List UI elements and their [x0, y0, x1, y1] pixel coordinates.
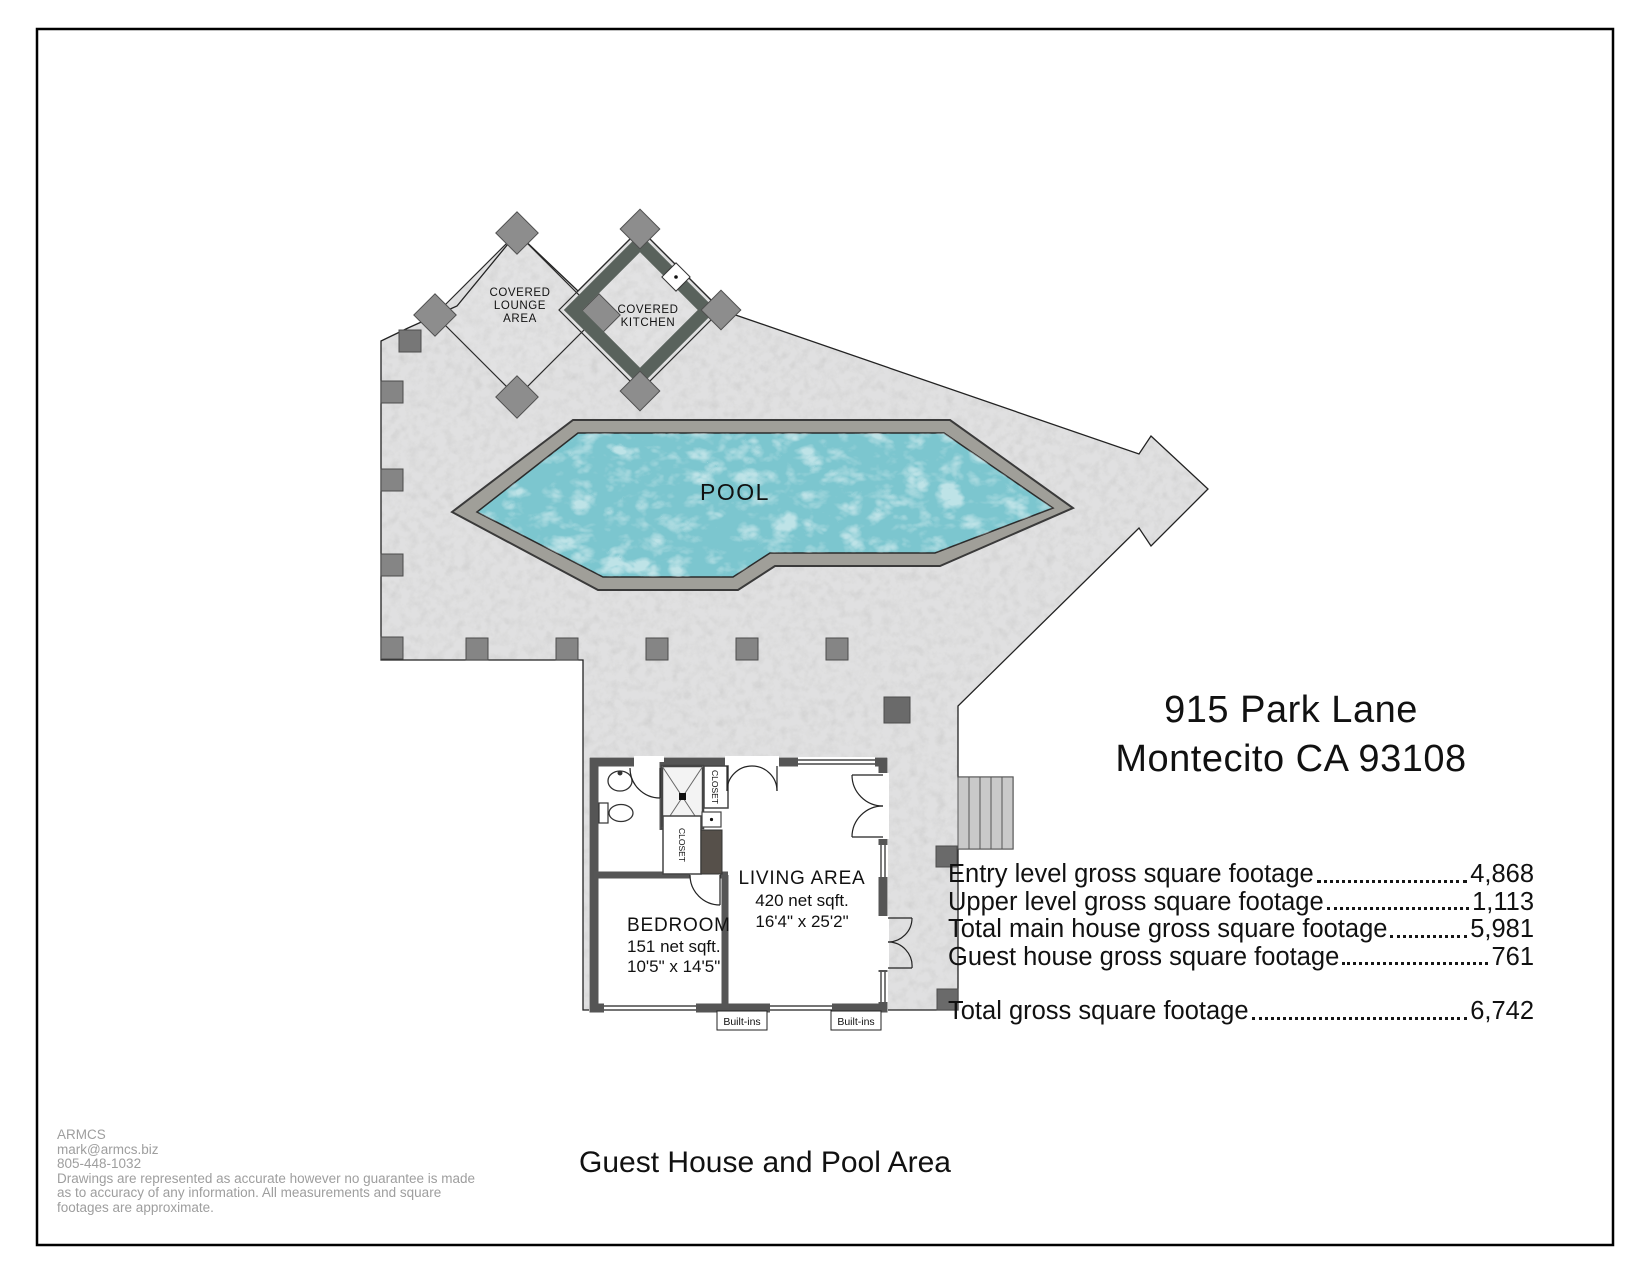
guest-house: CLOSET CLOSET LIVING AREA 420 net sqft.: [589, 756, 912, 1030]
dot-leader: [1342, 962, 1488, 965]
bedroom-dims: 10'5" x 14'5": [627, 957, 720, 976]
living-area-sqft: 420 net sqft.: [755, 891, 849, 910]
closet-upper: CLOSET: [704, 766, 728, 808]
drawing-title: Guest House and Pool Area: [470, 1146, 1060, 1180]
sqft-row-value: 5,981: [1470, 916, 1534, 944]
toilet-icon: [609, 805, 633, 822]
covered-lounge-label-3: AREA: [503, 313, 537, 325]
company-email: mark@armcs.biz: [57, 1143, 475, 1158]
company-phone: 805-448-1032: [57, 1157, 475, 1172]
preparer-footer: ARMCS mark@armcs.biz 805-448-1032 Drawin…: [57, 1128, 475, 1216]
disclaimer-line: footages are approximate.: [57, 1201, 475, 1216]
bedroom-sqft: 151 net sqft.: [627, 937, 721, 956]
sqft-row-label: Entry level gross square footage: [948, 861, 1314, 889]
built-ins: Built-ins Built-ins: [717, 1011, 881, 1030]
sqft-row-label: Upper level gross square footage: [948, 889, 1324, 917]
sqft-row-value: 761: [1491, 944, 1534, 972]
closet-lower: CLOSET: [663, 816, 701, 874]
floorplan-page: COVERED LOUNGE AREA COVERED KITCHEN: [0, 0, 1650, 1275]
living-area-dims: 16'4" x 25'2": [755, 912, 848, 931]
sqft-total-label: Total gross square footage: [948, 998, 1249, 1026]
sqft-row: Upper level gross square footage 1,113: [948, 889, 1534, 917]
company-name: ARMCS: [57, 1128, 475, 1143]
built-ins-right-label: Built-ins: [837, 1016, 874, 1028]
sqft-total-row: Total gross square footage 6,742: [948, 998, 1534, 1026]
address-line-1: 915 Park Lane: [1056, 686, 1526, 735]
dot-leader: [1327, 907, 1469, 910]
sqft-row-value: 1,113: [1472, 889, 1534, 917]
square-footage-table: Entry level gross square footage 4,868 U…: [948, 861, 1534, 1026]
covered-kitchen-label-1: COVERED: [617, 304, 678, 316]
floorplan-drawing: COVERED LOUNGE AREA COVERED KITCHEN: [0, 0, 1650, 1275]
sqft-row-value: 4,868: [1470, 861, 1534, 889]
covered-kitchen-label-2: KITCHEN: [621, 317, 676, 329]
sqft-row: Guest house gross square footage 761: [948, 944, 1534, 972]
covered-lounge-label-1: COVERED: [489, 287, 550, 299]
sqft-row: Total main house gross square footage 5,…: [948, 916, 1534, 944]
sqft-total-value: 6,742: [1470, 998, 1534, 1026]
sqft-row-label: Guest house gross square footage: [948, 944, 1339, 972]
sqft-row: Entry level gross square footage 4,868: [948, 861, 1534, 889]
dot-leader: [1317, 880, 1467, 883]
living-area-label: LIVING AREA: [738, 868, 865, 889]
pool-label: POOL: [700, 479, 770, 505]
disclaimer-line: as to accuracy of any information. All m…: [57, 1186, 475, 1201]
covered-lounge-label-2: LOUNGE: [494, 300, 546, 312]
property-address: 915 Park Lane Montecito CA 93108: [1056, 686, 1526, 784]
appliance-box: [702, 812, 721, 827]
toilet-tank-icon: [599, 803, 608, 823]
bedroom-label: BEDROOM: [627, 915, 731, 936]
built-ins-left-label: Built-ins: [723, 1016, 760, 1028]
dot-leader: [1252, 1017, 1468, 1020]
disclaimer-line: Drawings are represented as accurate how…: [57, 1172, 475, 1187]
address-line-2: Montecito CA 93108: [1056, 735, 1526, 784]
dot-leader: [1390, 935, 1467, 938]
sqft-row-label: Total main house gross square footage: [948, 916, 1387, 944]
deck-stairs: [958, 777, 1013, 849]
counter-strip: [701, 830, 722, 874]
closet-upper-label: CLOSET: [710, 770, 720, 804]
closet-lower-label: CLOSET: [677, 828, 687, 862]
